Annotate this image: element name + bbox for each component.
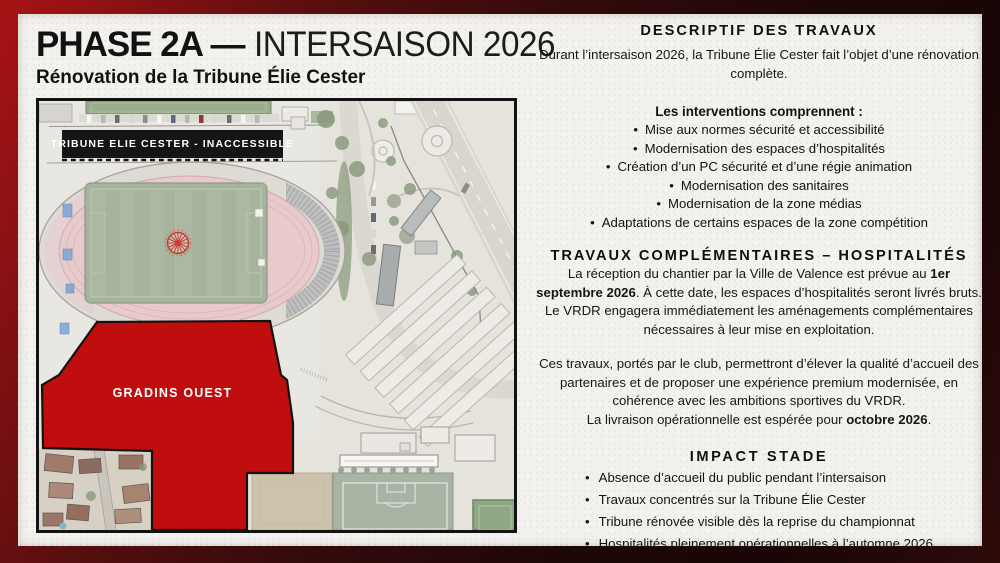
travaux-paragraph-3: La livraison opérationnelle est espérée …	[536, 411, 982, 430]
tribune-inaccessible-label: TRIBUNE ELIE CESTER - INACCESSIBLE	[62, 130, 283, 158]
travaux-p3-text-after: .	[928, 412, 932, 427]
page-title: PHASE 2A — INTERSAISON 2026	[36, 24, 526, 66]
impact-list-wrap: Absence d’accueil du public pendant l’in…	[536, 466, 982, 555]
intervention-item: Adaptations de certains espaces de la zo…	[536, 214, 982, 233]
travaux-paragraph-2: Ces travaux, portés par le club, permett…	[536, 355, 982, 411]
impact-item: Absence d’accueil du public pendant l’in…	[585, 467, 933, 489]
intervention-item: Création d’un PC sécurité et d’une régie…	[536, 158, 982, 177]
travaux-p3-text: La livraison opérationnelle est espérée …	[587, 412, 847, 427]
travaux-p1-text: La réception du chantier par la Ville de…	[568, 266, 930, 281]
content-panel: DESCRIPTIF DES TRAVAUX Durant l’intersai…	[536, 14, 982, 555]
phase-2a-slide: { "slide": { "title_bold": "PHASE 2A —",…	[0, 0, 1000, 563]
title-block: PHASE 2A — INTERSAISON 2026 Rénovation d…	[36, 24, 526, 89]
page-subtitle: Rénovation de la Tribune Élie Cester	[36, 67, 526, 89]
intervention-item: Modernisation des espaces d’hospitalités	[536, 140, 982, 159]
stadium	[39, 161, 345, 340]
travaux-p3-bold-date: octobre 2026	[846, 412, 927, 427]
interventions-heading: Les interventions comprennent :	[536, 103, 982, 121]
descriptif-heading: DESCRIPTIF DES TRAVAUX	[536, 22, 982, 40]
intervention-item: Modernisation des sanitaires	[536, 177, 982, 196]
impact-item: Tribune rénovée visible dès la reprise d…	[585, 511, 933, 533]
impact-item: Hospitalités pleinement opérationnelles …	[585, 533, 933, 555]
impact-heading: IMPACT STADE	[536, 448, 982, 466]
gradins-ouest-label: GRADINS OUEST	[94, 386, 251, 400]
slide-surface: PHASE 2A — INTERSAISON 2026 Rénovation d…	[18, 14, 982, 546]
title-season: INTERSAISON 2026	[254, 24, 555, 66]
intervention-item: Modernisation de la zone médias	[536, 195, 982, 214]
stadium-aerial-map	[39, 101, 514, 530]
interventions-list: Mise aux normes sécurité et accessibilit…	[536, 121, 982, 232]
travaux-paragraph-1: La réception du chantier par la Ville de…	[536, 265, 982, 339]
stadium-map: TRIBUNE ELIE CESTER - INACCESSIBLE GRADI…	[36, 98, 517, 533]
intervention-item: Mise aux normes sécurité et accessibilit…	[536, 121, 982, 140]
impact-list: Absence d’accueil du public pendant l’in…	[585, 467, 933, 555]
title-phase: PHASE 2A —	[36, 25, 244, 64]
descriptif-intro: Durant l’intersaison 2026, la Tribune Él…	[536, 46, 982, 83]
travaux-heading: TRAVAUX COMPLÉMENTAIRES – HOSPITALITÉS	[536, 247, 982, 265]
impact-item: Travaux concentrés sur la Tribune Élie C…	[585, 489, 933, 511]
